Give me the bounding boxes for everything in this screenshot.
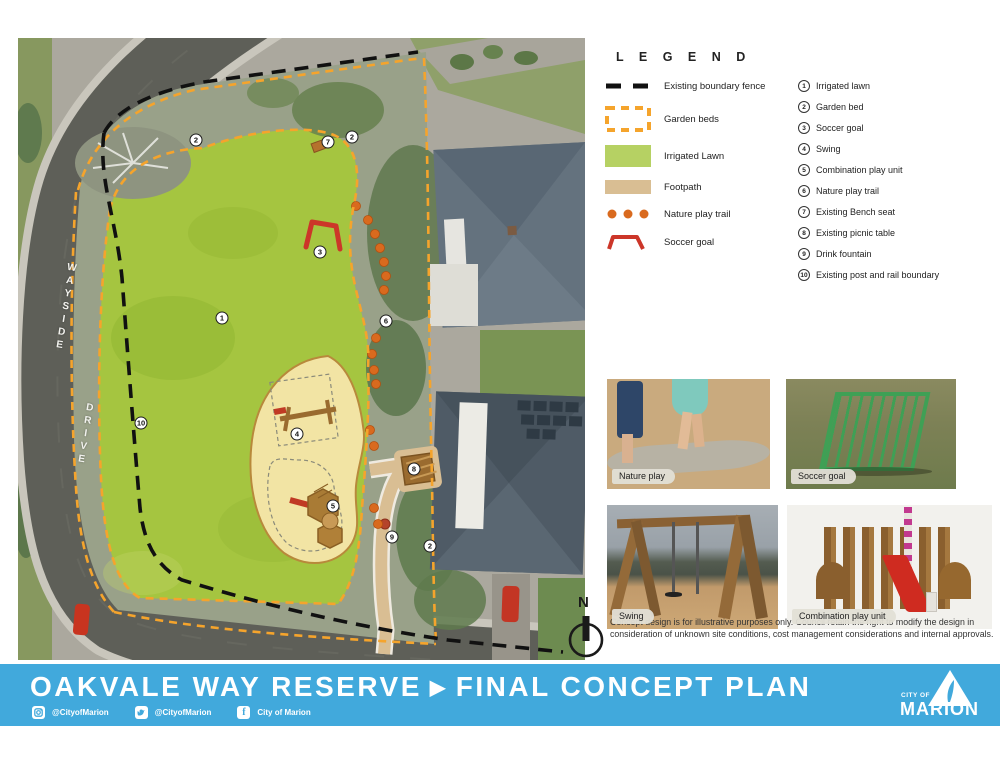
legend-item: 4Swing — [798, 143, 998, 155]
photo-caption: Nature play — [612, 469, 675, 484]
legend-symbol-soccer-goal: Soccer goal — [604, 233, 798, 251]
legend-item: 3Soccer goal — [798, 122, 998, 134]
north-label: N — [578, 594, 589, 611]
legend-item: 6Nature play trail — [798, 185, 998, 197]
map-marker-10: 10 — [135, 417, 148, 430]
map-marker-2: 2 — [346, 131, 359, 144]
soccer-goal-swatch — [604, 233, 652, 251]
plan-title: OAKVALE WAY RESERVE▶FINAL CONCEPT PLAN — [30, 671, 811, 703]
map-marker-5: 5 — [327, 500, 340, 513]
city-of-marion-logo: CITY OF MARION — [888, 668, 988, 724]
title-arrow-icon: ▶ — [430, 677, 448, 699]
social-links: @CityofMarion @CityofMarion f City of Ma… — [32, 706, 311, 719]
photo-swing: Swing — [607, 505, 778, 629]
legend-item: 8Existing picnic table — [798, 227, 998, 239]
map-markers-layer: 1272361045892 — [18, 38, 585, 660]
legend-item: 2Garden bed — [798, 101, 998, 113]
legend-item: 9Drink fountain — [798, 248, 998, 260]
fence-swatch — [604, 82, 652, 90]
social-instagram[interactable]: @CityofMarion — [32, 706, 109, 719]
photo-soccer-goal: Soccer goal — [786, 379, 956, 489]
map-marker-3: 3 — [314, 246, 327, 259]
title-banner: OAKVALE WAY RESERVE▶FINAL CONCEPT PLAN @… — [0, 664, 1000, 726]
map-marker-1: 1 — [216, 312, 229, 325]
map-marker-9: 9 — [386, 531, 399, 544]
photo-combination-play-unit: Combination play unit — [787, 505, 992, 629]
legend-symbol-fence: Existing boundary fence — [604, 78, 798, 94]
social-twitter[interactable]: @CityofMarion — [135, 706, 212, 719]
legend-symbol-garden-beds: Garden beds — [604, 105, 798, 133]
legend-symbol-lawn: Irrigated Lawn — [604, 144, 798, 168]
lawn-swatch — [604, 144, 652, 168]
social-facebook[interactable]: f City of Marion — [237, 706, 310, 719]
concept-plan-page: WAYSIDE DRIVE 1272361045892 L E G E N D … — [0, 0, 1000, 763]
twitter-icon — [135, 706, 148, 719]
map-marker-8: 8 — [408, 463, 421, 476]
reference-photos: Nature play Soccer goal Swing Combinatio — [607, 379, 992, 629]
legend-symbol-footpath: Footpath — [604, 179, 798, 195]
map-marker-4: 4 — [291, 428, 304, 441]
photo-caption: Soccer goal — [791, 469, 856, 484]
legend-symbol-nature-trail: Nature play trail — [604, 206, 798, 222]
legend-item: 7Existing Bench seat — [798, 206, 998, 218]
legend-title: L E G E N D — [616, 50, 998, 64]
instagram-icon — [32, 706, 45, 719]
map-marker-6: 6 — [380, 315, 393, 328]
map-marker-2: 2 — [424, 540, 437, 553]
garden-beds-swatch — [604, 105, 652, 133]
north-compass-icon — [566, 596, 612, 662]
map-marker-7: 7 — [322, 136, 335, 149]
legend-panel: L E G E N D Existing boundary fence Gard… — [600, 42, 998, 282]
north-arrow: N — [566, 596, 612, 662]
footpath-swatch — [604, 179, 652, 195]
facebook-icon: f — [237, 706, 250, 719]
photo-nature-play: Nature play — [607, 379, 770, 489]
legend-items-column: 1Irrigated lawn 2Garden bed 3Soccer goal… — [798, 78, 998, 290]
legend-symbol-column: Existing boundary fence Garden beds Irri… — [600, 78, 798, 290]
photo-caption: Swing — [612, 609, 654, 624]
nature-trail-swatch — [604, 208, 652, 220]
legend-item: 5Combination play unit — [798, 164, 998, 176]
photo-caption: Combination play unit — [792, 609, 896, 624]
legend-item: 1Irrigated lawn — [798, 80, 998, 92]
map-marker-2: 2 — [190, 134, 203, 147]
aerial-site-map: WAYSIDE DRIVE 1272361045892 — [18, 38, 585, 660]
legend-item: 10Existing post and rail boundary — [798, 269, 998, 281]
